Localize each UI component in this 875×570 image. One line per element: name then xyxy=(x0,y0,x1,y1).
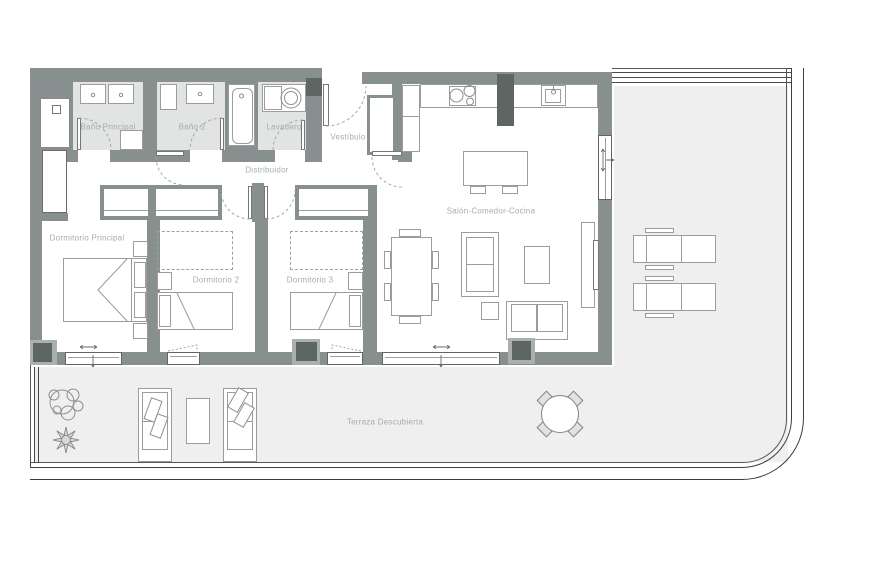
terrace-dining-set xyxy=(537,391,583,437)
kitchen-symbols xyxy=(450,86,556,106)
door-arc-dorm-2 xyxy=(221,190,250,219)
casement-window-symbols xyxy=(168,345,361,351)
casement-dorm3 xyxy=(332,345,361,351)
bed-fold xyxy=(98,259,127,321)
room-label-dormitorio-3: Dormitorio 3 xyxy=(287,276,334,285)
hob-burner-icon xyxy=(464,86,475,97)
slide-arrow-h xyxy=(80,345,97,349)
room-label-dormitorio-2: Dormitorio 2 xyxy=(193,276,240,285)
slide-arrow-v xyxy=(91,355,95,367)
sink-drain-icon xyxy=(198,92,201,95)
plant-icon xyxy=(49,390,59,400)
door-arc-entrance xyxy=(326,86,366,126)
room-label-salon-comedor-cocina: Salón-Comedor-Cocina xyxy=(447,207,536,216)
terrace-plants xyxy=(49,389,83,453)
room-label-vestibulo: Vestíbulo xyxy=(330,133,365,142)
sink-drain-icon xyxy=(119,93,122,96)
faucet-icon xyxy=(552,90,556,94)
slide-arrow-v xyxy=(601,149,605,171)
opening-arrows xyxy=(80,149,614,367)
bed-fold xyxy=(319,293,336,329)
symbol-overlay xyxy=(0,0,875,570)
bath-symbols xyxy=(91,88,301,108)
floor-plan: Baño Principal Baño 2 Lavadero Vestíbulo… xyxy=(0,0,875,570)
room-label-dormitorio-principal: Dormitorio Principal xyxy=(50,234,125,243)
hob-burner-icon xyxy=(450,89,463,102)
bed-fold xyxy=(177,293,194,329)
plant-star-icon xyxy=(53,427,79,453)
sink-drain-icon xyxy=(91,93,94,96)
bed-fold-lines xyxy=(98,259,336,329)
room-label-distribuidor: Distribuidor xyxy=(245,166,288,175)
door-swing-arcs xyxy=(79,86,402,219)
slide-arrow-h xyxy=(606,158,614,162)
room-label-bano-2: Baño 2 xyxy=(179,123,206,132)
room-label-lavadero: Lavadero xyxy=(266,123,301,132)
washing-machine-drum-icon xyxy=(285,92,298,105)
lounger-cushions xyxy=(144,388,254,438)
tub-drain-icon xyxy=(240,94,244,98)
terrace-round-table xyxy=(542,396,579,433)
door-arc-dorm-principal xyxy=(156,157,184,185)
door-arc-dorm-3 xyxy=(266,190,295,219)
slide-arrow-v xyxy=(439,355,443,367)
plant-icon xyxy=(61,406,75,420)
room-label-terraza-descubierta: Terraza Descubierta xyxy=(347,418,423,427)
plant-icon xyxy=(67,389,79,401)
door-arc-salon xyxy=(372,157,402,187)
hob-burner-icon xyxy=(467,98,474,105)
slide-arrow-h xyxy=(433,345,450,349)
room-label-bano-principal: Baño Principal xyxy=(80,123,135,132)
casement-dorm2 xyxy=(168,345,197,351)
